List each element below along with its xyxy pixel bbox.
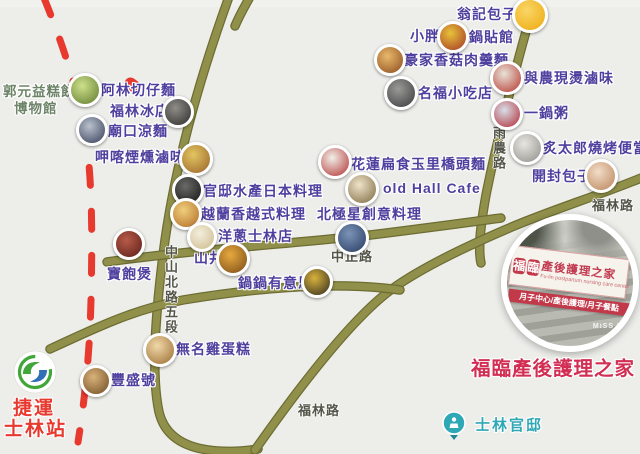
road-label-zhongshan-n-road: 中山北路五段 xyxy=(161,245,180,335)
poi-label-fengshenghao: 豐盛號 xyxy=(111,373,156,388)
poi-photo-marker-miaokou-liangmian[interactable] xyxy=(76,114,108,146)
poi-photo-marker-yiguozhou[interactable] xyxy=(491,98,523,130)
poi-photo-marker-zhitailang-shaokao[interactable] xyxy=(510,131,544,165)
poi-photo-marker-yangcong-shilin[interactable] xyxy=(187,222,217,252)
poi-label-wuming-jidangao: 無名雞蛋糕 xyxy=(176,342,251,357)
inset-watermark: MiSS B xyxy=(593,323,623,330)
inset-brand-char2: 臨 xyxy=(526,259,540,276)
poi-label-guandi-shuichan-riben: 官邸水產日本料理 xyxy=(203,184,323,199)
poi-label-yuelanxiang-yueshi: 越蘭香越式料理 xyxy=(201,207,306,222)
road-label-fulin-road-south: 福林路 xyxy=(298,400,340,419)
poi-label-zhitailang-shaokao: 炙太郎燒烤便當 xyxy=(543,141,640,156)
metro-station-line1: 捷運 xyxy=(4,399,67,420)
poi-photo-marker-guoguo-youyisi[interactable] xyxy=(301,266,333,298)
poi-label-beijixing-chuangyi: 北極星創意料理 xyxy=(317,207,422,222)
poi-photo-marker-hualien-bianshi-qiaotou[interactable] xyxy=(318,145,352,179)
poi-label-kaifeng-baozi: 開封包子 xyxy=(532,169,592,184)
poi-photo-marker-alin-qiezaimian[interactable] xyxy=(68,73,102,107)
road-southwest-branch xyxy=(50,286,400,349)
care-center-label: 福臨產後護理之家 xyxy=(471,352,635,381)
museum-label: 郭元益糕餅 博物館 xyxy=(3,84,76,118)
residence-pin-icon[interactable] xyxy=(441,411,467,441)
inset-brand-char1: 福 xyxy=(512,257,526,274)
poi-label-old-hall-cafe: old Hall Cafe xyxy=(383,181,481,196)
residence-label: 士林官邸 xyxy=(475,414,543,435)
poi-photo-marker-beijixing-chuangyi[interactable] xyxy=(335,221,369,255)
poi-label-mingfu-xiaochidian: 名福小吃店 xyxy=(418,86,493,101)
poi-photo-marker-fengshenghao[interactable] xyxy=(80,365,112,397)
inset-banner-text: 產後護理之家 Fu-lin postpartum nursing care ce… xyxy=(540,258,639,292)
metro-station-line2: 士林站 xyxy=(4,420,67,441)
taipei-metro-logo-icon[interactable] xyxy=(13,350,57,394)
poi-photo-marker-old-hall-cafe[interactable] xyxy=(345,172,379,206)
poi-photo-marker-haojia-xianggu-rougeng[interactable] xyxy=(374,44,406,76)
poi-label-xiaopang-guotieguan: 小胖 xyxy=(410,29,440,44)
poi-photo-marker-shanjing[interactable] xyxy=(216,242,250,276)
poi-label-yunong-xiantang-luwei: 與農現燙滷味 xyxy=(524,71,614,86)
poi-label-jiaka-yanxun-luwei: 呷喀煙燻滷味 xyxy=(95,150,185,165)
care-center-photo-inset: 福 臨 產後護理之家 Fu-lin postpartum nursing car… xyxy=(501,214,639,352)
poi-label-baobaobao: 寶飽煲 xyxy=(107,267,152,282)
poi-photo-marker-xiaopang-guotieguan[interactable] xyxy=(437,21,469,53)
poi-photo-marker-wuming-jidangao[interactable] xyxy=(143,333,177,367)
poi-label-wengji-baozi: 翁記包子 xyxy=(457,7,517,22)
poi-photo-marker-fulin-bingdian[interactable] xyxy=(162,96,194,128)
road-label-fulin-road-ne: 福林路 xyxy=(592,195,634,214)
metro-station-label: 捷運 士林站 xyxy=(4,399,67,440)
museum-label-line1: 郭元益糕餅 xyxy=(3,84,76,101)
poi-label-fulin-bingdian: 福林冰店 xyxy=(110,104,170,119)
poi-photo-marker-yunong-xiantang-luwei[interactable] xyxy=(490,61,524,95)
map-canvas[interactable]: 翁記包子小胖鍋貼館豪家香菇肉羹麵與農現燙滷味名福小吃店一鍋粥炙太郎燒烤便當開封包… xyxy=(0,0,640,454)
poi-photo-marker-mingfu-xiaochidian[interactable] xyxy=(384,76,418,110)
road-label-yunong-road: 雨農路 xyxy=(489,126,508,171)
poi-label-yiguozhou: 一鍋粥 xyxy=(524,106,569,121)
poi-label-hualien-bianshi-qiaotou: 花蓮扁食玉里橋頭麵 xyxy=(351,157,486,172)
poi-photo-marker-kaifeng-baozi[interactable] xyxy=(584,159,618,193)
poi-photo-marker-jiaka-yanxun-luwei[interactable] xyxy=(179,142,213,176)
poi-photo-marker-baobaobao[interactable] xyxy=(113,228,145,260)
poi-label-miaokou-liangmian: 廟口涼麵 xyxy=(108,124,168,139)
poi-label-alin-qiezaimian: 阿林切仔麵 xyxy=(101,83,176,98)
poi-label-xiaopang-guotieguan-part2: 鍋貼館 xyxy=(469,30,514,45)
museum-label-line2: 博物館 xyxy=(3,101,76,118)
